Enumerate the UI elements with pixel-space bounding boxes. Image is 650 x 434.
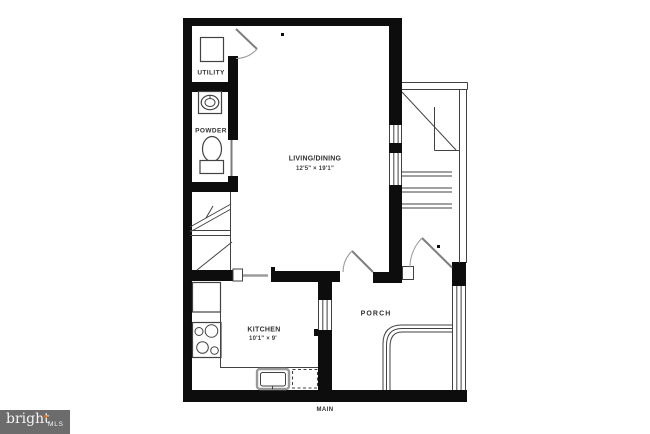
living-dining-room-label: LIVING/DINING [289, 155, 341, 162]
living-dining-dimensions: 12'5" × 19'1" [296, 166, 334, 172]
porch-window [453, 286, 466, 390]
kitchen-door [233, 269, 268, 281]
logo-accent-dot-icon [44, 415, 47, 418]
washer-icon [201, 38, 224, 62]
floor-plan-canvas: UTILITY POWDER LIVING/DINING 12'5" × 19'… [0, 0, 650, 434]
stove-icon [193, 323, 222, 358]
living-window-upper [390, 125, 402, 143]
powder-room-label: POWDER [195, 128, 227, 135]
fridge-icon [193, 283, 221, 313]
floor-level-label: MAIN [317, 407, 334, 413]
kitchen-window [319, 300, 332, 330]
logo-brand-text: bright [6, 411, 50, 427]
porch-exterior-door [403, 238, 453, 280]
exterior-stairs [402, 83, 468, 264]
interior-stairs [190, 192, 232, 270]
living-window-lower [390, 153, 402, 185]
powder-door [230, 136, 234, 177]
porch-rail [383, 325, 452, 390]
utility-door [236, 29, 257, 59]
powder-sink-icon [199, 92, 222, 114]
living-porch-door [343, 251, 373, 272]
kitchen-sink-icon [257, 369, 289, 389]
kitchen-room-label: KITCHEN [247, 327, 280, 334]
dishwasher-icon [293, 370, 318, 389]
kitchen-dimensions: 10'1" × 9' [249, 336, 277, 342]
walls [183, 18, 467, 402]
porch-room-label: PORCH [361, 311, 392, 318]
toilet-icon [200, 137, 224, 174]
logo-suffix-text: MLS [48, 421, 64, 428]
utility-room-label: UTILITY [197, 70, 224, 77]
bright-mls-logo: bright MLS [0, 410, 70, 434]
floor-plan-drawing [0, 0, 650, 434]
